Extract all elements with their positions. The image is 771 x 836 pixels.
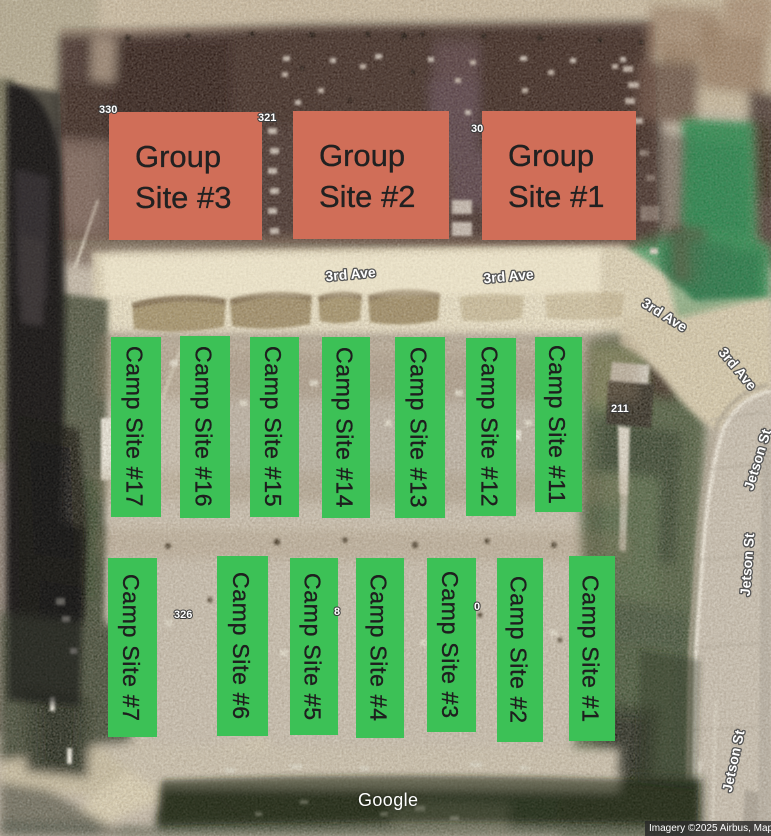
svg-text:Jetson St: Jetson St — [719, 728, 748, 793]
svg-text:330: 330 — [99, 104, 117, 116]
svg-text:321: 321 — [258, 112, 276, 124]
svg-text:3rd Ave: 3rd Ave — [639, 295, 690, 335]
svg-text:3rd Ave: 3rd Ave — [325, 264, 377, 284]
svg-text:211: 211 — [611, 403, 629, 415]
svg-text:Jetson St: Jetson St — [737, 532, 757, 596]
svg-text:0: 0 — [474, 601, 480, 613]
svg-text:3rd Ave: 3rd Ave — [483, 266, 535, 286]
svg-text:30: 30 — [471, 123, 483, 135]
svg-text:3rd Ave: 3rd Ave — [716, 344, 761, 393]
svg-text:Jetson St: Jetson St — [740, 427, 771, 492]
svg-text:8: 8 — [334, 606, 340, 618]
svg-text:326: 326 — [174, 609, 192, 621]
